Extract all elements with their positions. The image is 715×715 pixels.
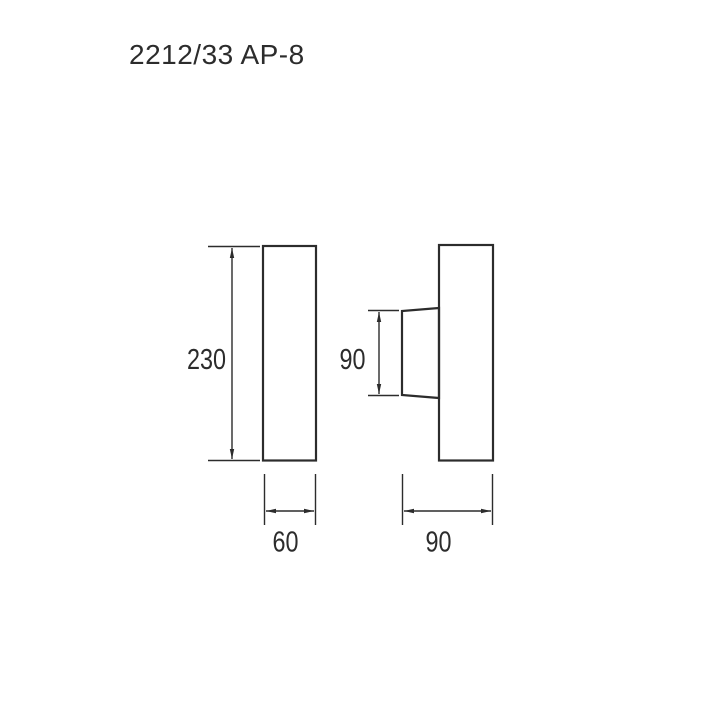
side-depth-dimension-label: 90 [426,527,452,559]
side-view-outline [439,245,493,461]
front-view-outline [263,246,316,461]
wall-bracket-outline [402,308,439,398]
bracket-height-dimension-label: 90 [340,344,366,376]
technical-drawing: 230 60 90 90 [0,0,715,715]
front-height-dimension-label: 230 [187,344,226,376]
drawing-sheet: 2212/33 AP-8 230 60 90 90 [0,0,715,715]
front-width-dimension-label: 60 [273,527,299,559]
